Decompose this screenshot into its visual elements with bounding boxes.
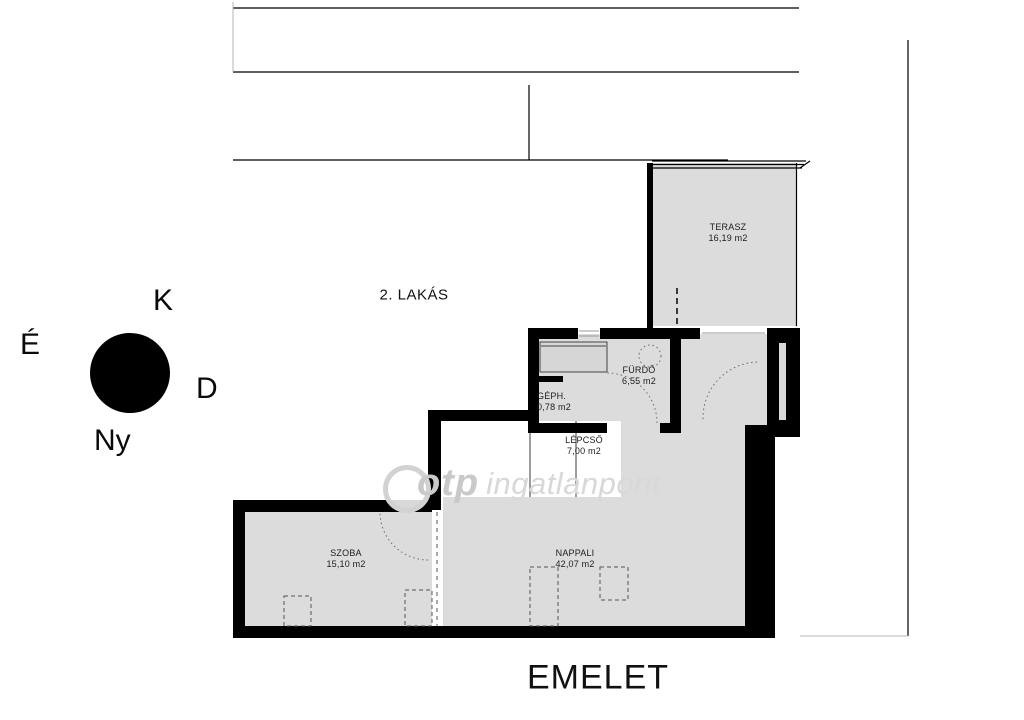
room-area: 15,10 m2 (326, 559, 365, 570)
room-name: SZOBA (330, 548, 362, 558)
room-area: 42,07 m2 (555, 559, 594, 570)
floor-title: EMELET (527, 659, 669, 698)
room-label-furdo: FÜRDŐ 6,55 m2 (622, 365, 656, 387)
room-name: NAPPALI (556, 548, 595, 558)
room-area: 7,00 m2 (565, 446, 603, 457)
room-name: LÉPCSŐ (565, 435, 603, 445)
room-label-nappali: NAPPALI 42,07 m2 (555, 548, 594, 570)
room-name: FÜRDŐ (622, 365, 655, 375)
compass-west-label: Ny (94, 426, 131, 456)
shower-tray (540, 342, 607, 372)
compass-north-label: É (20, 330, 40, 360)
room-area: 6,55 m2 (622, 376, 656, 387)
compass-east-label: K (153, 286, 173, 316)
room-label-lepcso: LÉPCSŐ 7,00 m2 (565, 435, 603, 457)
room-area: 16,19 m2 (708, 233, 747, 244)
apartment-label: 2. LAKÁS (379, 287, 448, 304)
room-label-terasz: TERASZ 16,19 m2 (708, 222, 747, 244)
compass-rose: K É D Ny (15, 280, 235, 475)
terrace-area (647, 161, 810, 340)
room-name: TERASZ (710, 222, 747, 232)
watermark-name: ingatlanpont (486, 463, 661, 505)
watermark: otp ingatlanpont (383, 463, 661, 513)
room-label-szoba: SZOBA 15,10 m2 (326, 548, 365, 570)
room-label-geph: GÉPH. 0,78 m2 (537, 391, 571, 413)
watermark-brand: otp (417, 463, 479, 503)
room-area: 0,78 m2 (537, 402, 571, 413)
floorplan-page: TERASZ 16,19 m2 FÜRDŐ 6,55 m2 GÉPH. 0,78… (0, 0, 1024, 720)
compass-south-label: D (196, 374, 218, 404)
room-name: GÉPH. (537, 391, 566, 401)
